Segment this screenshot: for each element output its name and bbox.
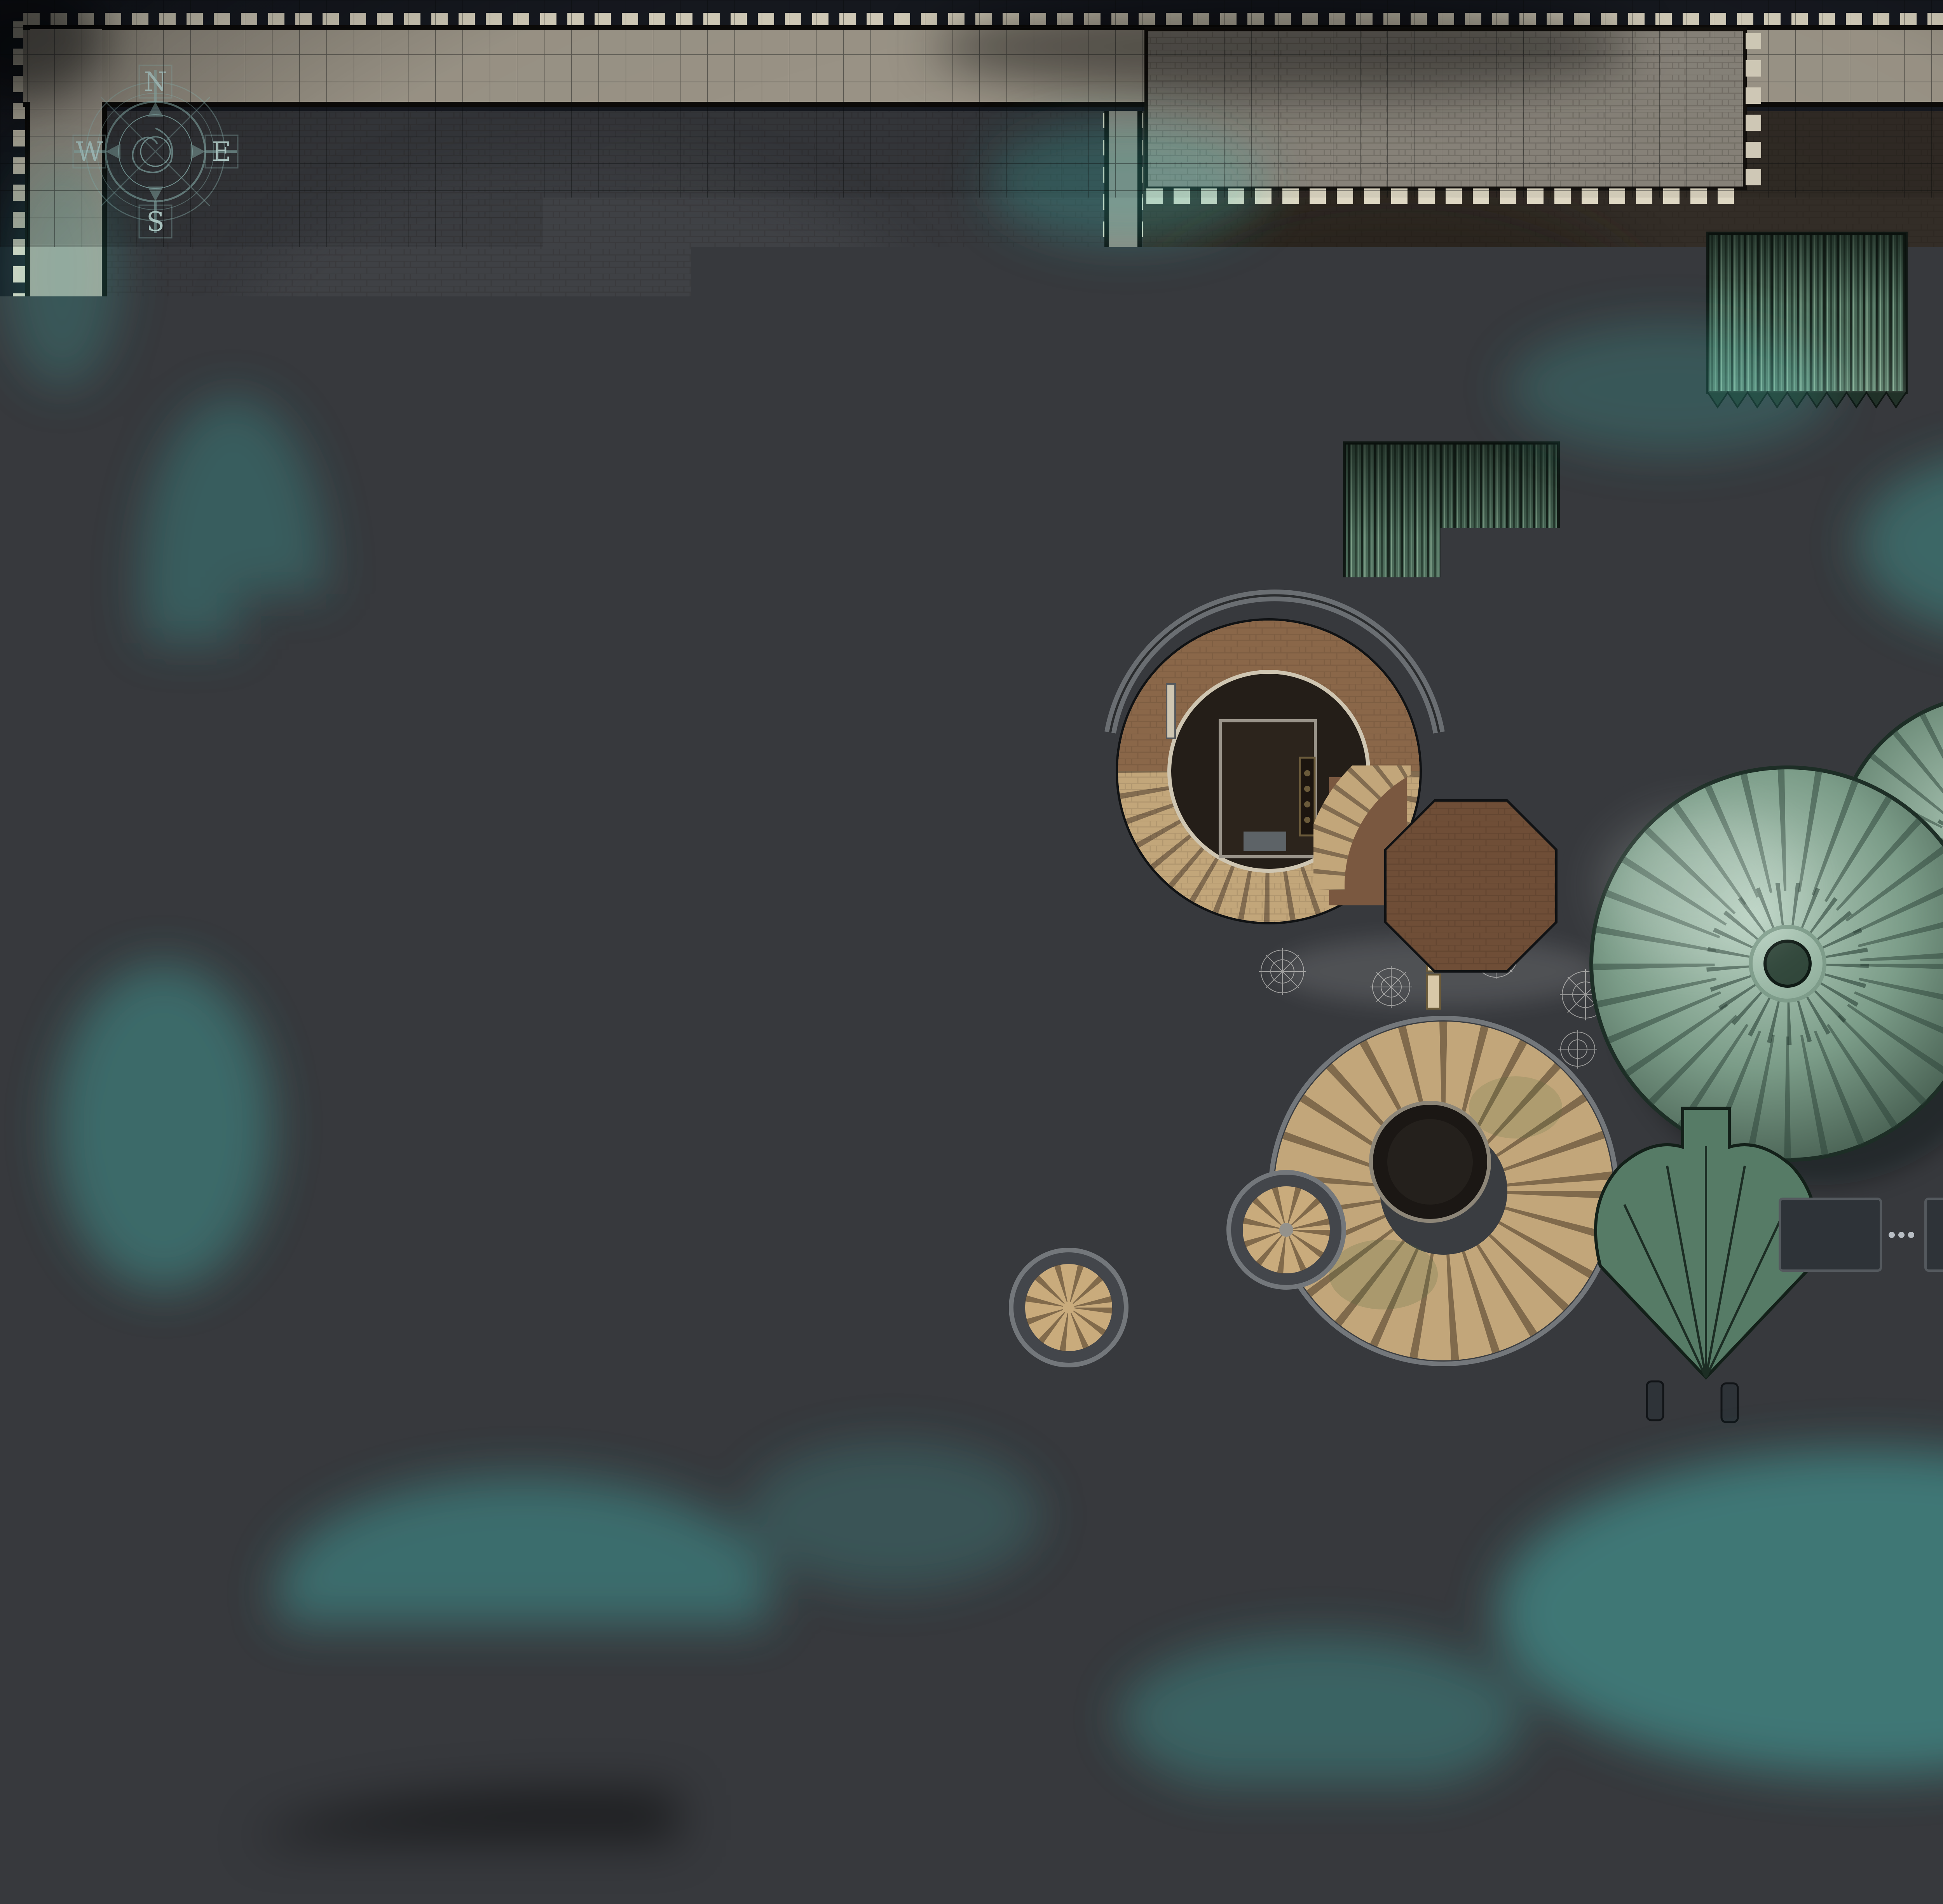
map-title: ROOMS OF WEEPING (272, 1830, 647, 1862)
battle-map: N S W E ROOMS OF WEEPING COPYRIGHT G JEN… (0, 0, 1943, 1904)
vignette (0, 0, 1943, 1904)
battle-map-page: { "map": { "title": "ROOMS OF WEEPING", … (0, 0, 1943, 1904)
map-copyright: COPYRIGHT G JENSEN 2016 (273, 1872, 504, 1887)
